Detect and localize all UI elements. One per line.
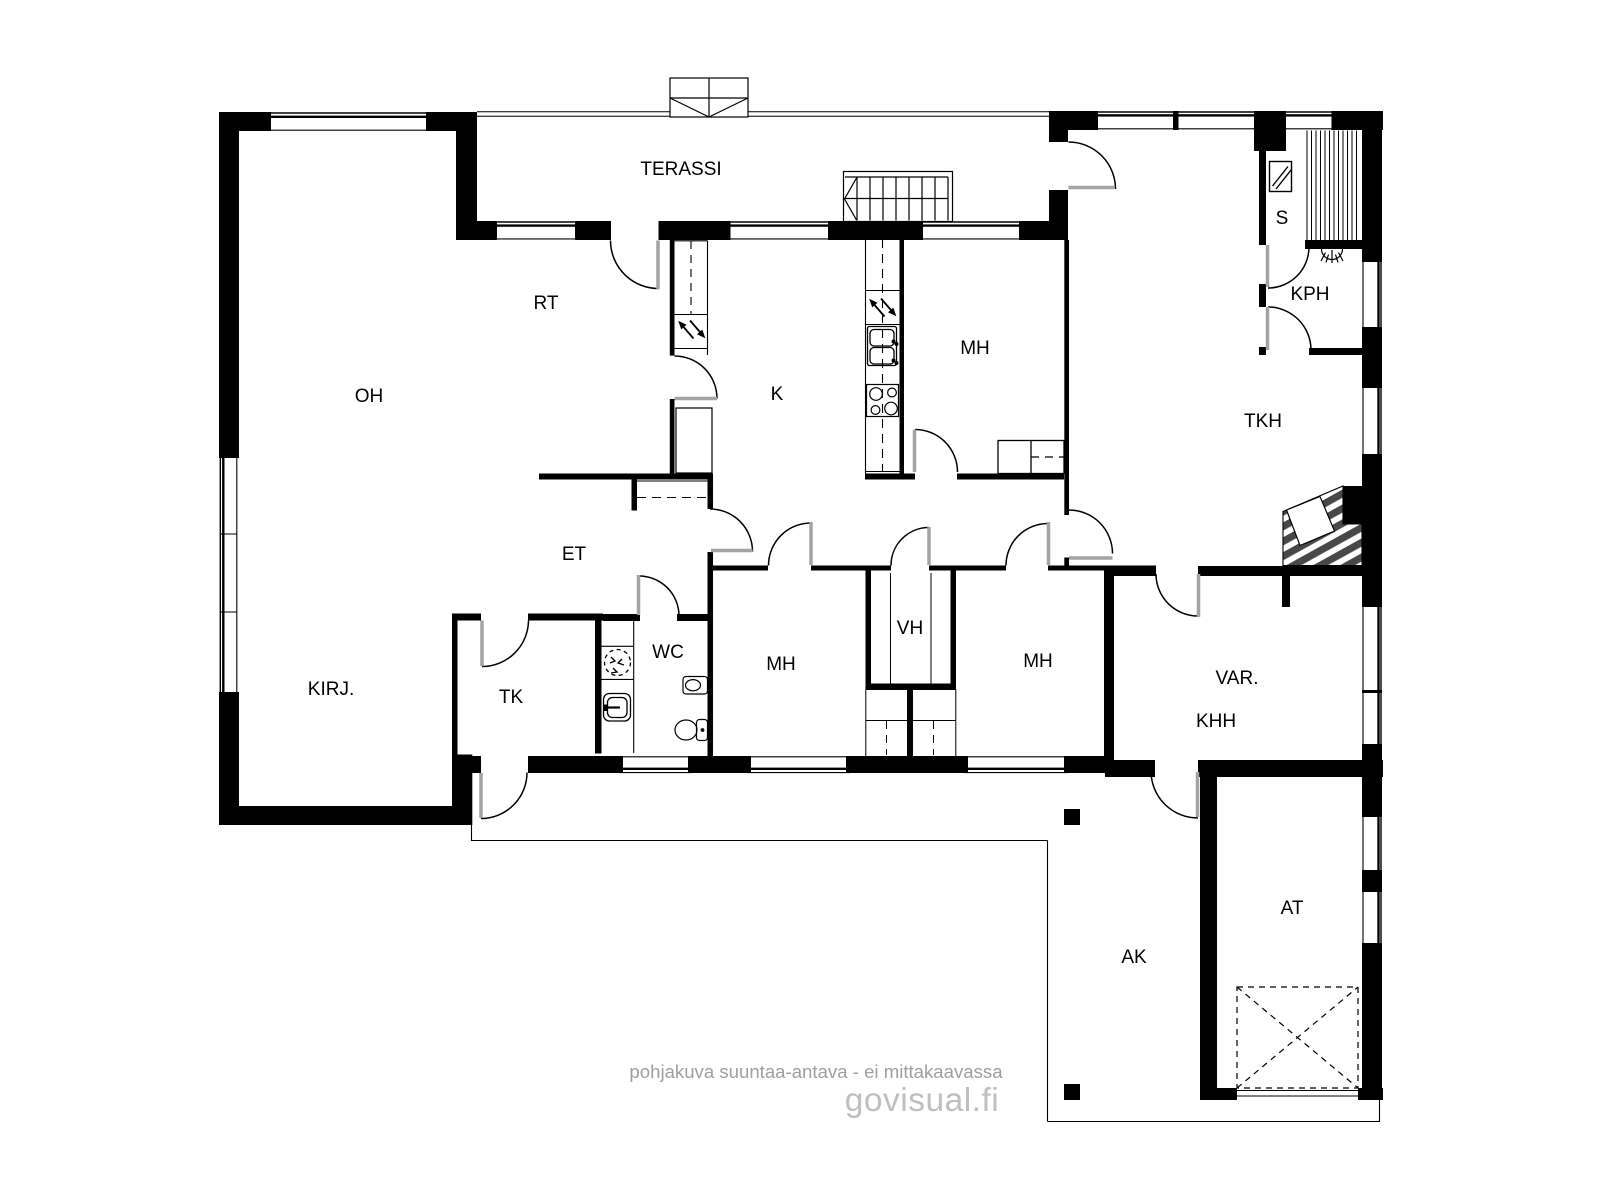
- svg-text:TK: TK: [499, 687, 524, 708]
- svg-text:ET: ET: [562, 544, 587, 565]
- svg-text:S: S: [1276, 208, 1289, 229]
- svg-text:VAR.: VAR.: [1216, 668, 1259, 689]
- svg-text:MH: MH: [766, 654, 796, 675]
- svg-text:govisual.fi: govisual.fi: [845, 1082, 999, 1119]
- svg-text:KPH: KPH: [1290, 284, 1329, 305]
- svg-text:pohjakuva suuntaa-antava - ei: pohjakuva suuntaa-antava - ei mittakaava…: [629, 1061, 1003, 1082]
- svg-text:KIRJ.: KIRJ.: [308, 679, 354, 700]
- svg-text:TKH: TKH: [1244, 411, 1282, 432]
- svg-text:TERASSI: TERASSI: [640, 159, 721, 180]
- svg-text:RT: RT: [534, 293, 559, 314]
- svg-text:WC: WC: [652, 642, 684, 663]
- svg-text:VH: VH: [897, 618, 923, 639]
- svg-text:MH: MH: [1023, 651, 1053, 672]
- svg-text:KHH: KHH: [1196, 711, 1236, 732]
- svg-text:MH: MH: [960, 338, 990, 359]
- svg-text:AK: AK: [1121, 947, 1147, 968]
- svg-text:K: K: [771, 384, 784, 405]
- svg-text:OH: OH: [355, 386, 384, 407]
- svg-text:AT: AT: [1281, 898, 1304, 919]
